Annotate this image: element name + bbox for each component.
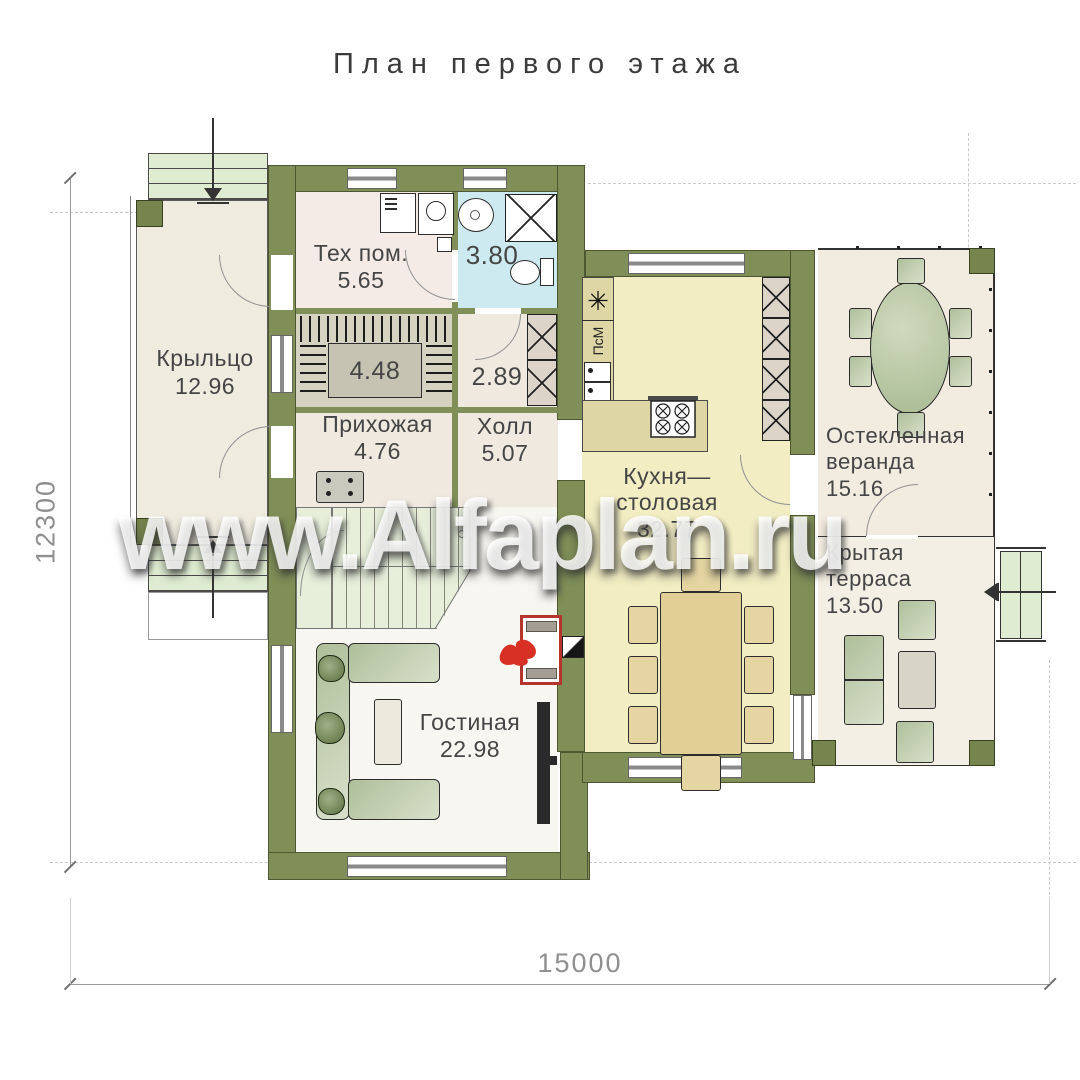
pantry-cabinet-icon — [762, 318, 790, 359]
veranda-chair — [949, 308, 972, 339]
fireplace-side — [526, 621, 557, 632]
hanger-rail-icon — [426, 345, 452, 398]
room-label: Холл — [455, 414, 555, 440]
porch-lower-landing — [148, 592, 268, 640]
wall — [557, 165, 585, 420]
washbasin-drain-icon — [470, 210, 480, 220]
room-label: веранда — [826, 450, 991, 475]
dimension-extension — [1049, 898, 1050, 984]
watermark: www.Alfaplan.ru — [118, 478, 998, 592]
dining-chair — [744, 656, 774, 694]
porch-column — [136, 200, 163, 227]
entry-arrow-stem — [212, 118, 214, 190]
tv-mount-icon — [550, 756, 557, 765]
terrace-table — [898, 651, 936, 709]
dining-chair — [628, 706, 658, 744]
window — [463, 168, 507, 189]
veranda-column — [969, 248, 995, 274]
kitchen-sink-divider — [584, 381, 611, 383]
wall — [790, 250, 815, 455]
dining-chair — [628, 606, 658, 644]
terrace-steps-edge — [996, 640, 1046, 642]
hanger-rail-icon — [300, 316, 452, 342]
room-label: Крыльцо — [140, 346, 270, 372]
terrace-column — [812, 740, 836, 766]
dimension-height-label: 12300 — [31, 462, 62, 582]
dimension-line — [70, 178, 71, 868]
window — [347, 168, 397, 189]
dishwasher-label: ПсМ — [579, 321, 617, 361]
entry-arrow-base — [197, 202, 229, 204]
axis-line — [50, 212, 138, 213]
room-area: 2.89 — [462, 363, 532, 391]
cabinet-icon — [527, 314, 557, 360]
room-label: Остекленная — [826, 424, 991, 449]
dimension-line — [70, 984, 1050, 985]
dimension-width-label: 15000 — [500, 948, 660, 979]
dining-chair — [744, 606, 774, 644]
floor-plan-canvas: План первого этажа — [0, 0, 1080, 1080]
veranda-chair — [849, 308, 872, 339]
room-label: Гостиная — [395, 710, 545, 736]
room-area: 12.96 — [140, 374, 270, 400]
veranda-table — [870, 282, 950, 414]
axis-line — [588, 183, 1076, 184]
room-area: 4.48 — [340, 357, 410, 385]
veranda-chair — [949, 356, 972, 387]
room-area: 22.98 — [395, 737, 545, 763]
window — [271, 335, 293, 393]
terrace-steps-edge — [996, 547, 1046, 549]
flame-icon — [497, 634, 543, 670]
washing-machine-drum-icon — [426, 201, 446, 221]
small-appliance-icon — [437, 237, 452, 252]
freezer-icon: ✳ — [582, 281, 614, 321]
flue-icon — [562, 636, 584, 658]
room-area: 5.07 — [455, 441, 555, 467]
terrace-column — [969, 740, 995, 766]
page-title: План первого этажа — [0, 48, 1080, 81]
pantry-cabinet-icon — [762, 400, 790, 441]
dining-chair — [744, 706, 774, 744]
window — [347, 856, 507, 877]
plant-icon — [318, 788, 345, 815]
door-opening — [271, 426, 293, 478]
shower-icon — [505, 194, 557, 242]
dimension-extension — [70, 898, 71, 984]
sofa-seat — [348, 779, 440, 820]
room-area: 4.76 — [300, 439, 455, 465]
plant-icon — [318, 655, 345, 682]
room-area: 3.80 — [456, 241, 528, 270]
room-area: 5.65 — [300, 268, 422, 294]
stove-burners-icon — [650, 400, 696, 438]
entry-arrow-icon — [204, 188, 222, 201]
partition-wall — [452, 313, 458, 408]
terrace-steps-line — [1020, 551, 1021, 639]
veranda-chair — [849, 356, 872, 387]
terrace-armchair — [896, 721, 934, 763]
window — [793, 695, 812, 760]
axis-line — [1049, 660, 1050, 900]
room-label: Тех пом. — [300, 241, 422, 267]
boiler-panel-lines — [385, 198, 397, 200]
pantry-cabinet-icon — [762, 277, 790, 318]
sofa-seat — [348, 643, 440, 683]
pantry-cabinet-icon — [762, 359, 790, 400]
dining-chair — [681, 755, 721, 791]
dining-table — [660, 592, 742, 755]
terrace-sofa-cushion-line — [844, 679, 884, 681]
hanger-rail-icon — [300, 345, 326, 398]
window — [271, 645, 293, 733]
window — [628, 253, 745, 274]
dining-chair — [628, 656, 658, 694]
exit-arrow-stem — [998, 591, 1056, 593]
plant-icon — [315, 712, 345, 744]
room-label: Прихожая — [300, 412, 455, 438]
veranda-chair — [897, 258, 925, 284]
room-area: 13.50 — [826, 594, 986, 619]
wall — [268, 165, 585, 192]
door-opening — [271, 255, 293, 310]
terrace-steps — [1000, 551, 1042, 639]
toilet-tank-icon — [540, 258, 554, 286]
kitchen-tap-icon — [588, 368, 593, 373]
